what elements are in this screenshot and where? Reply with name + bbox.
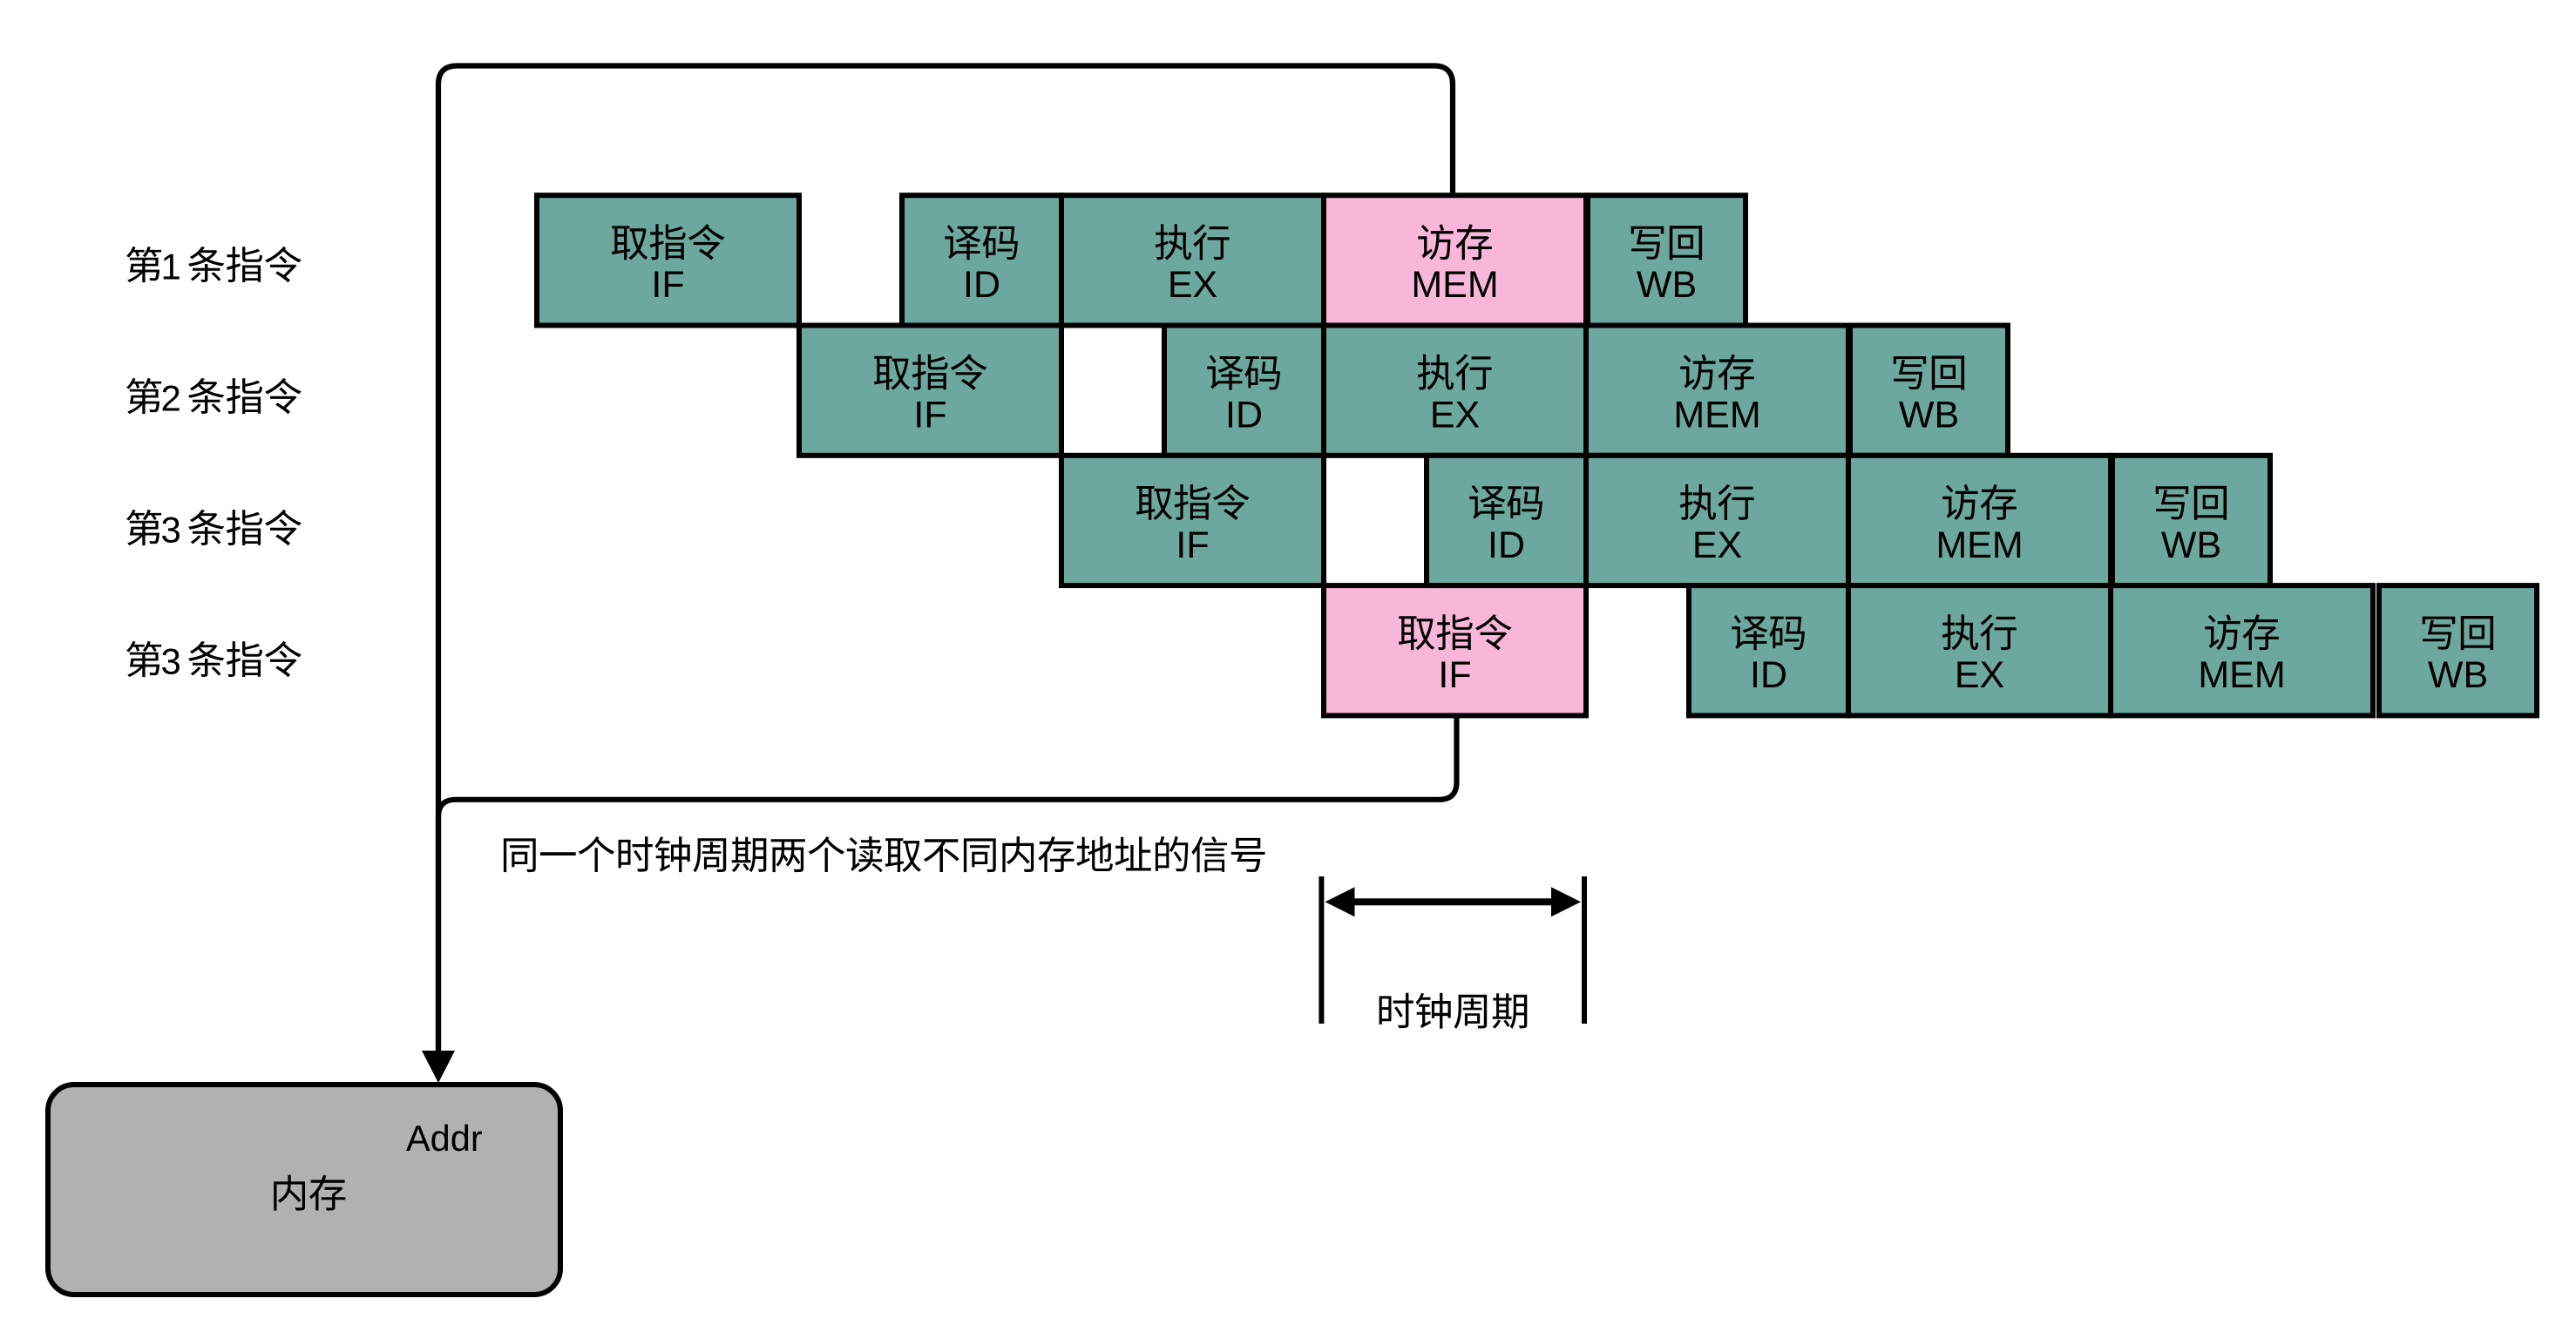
svg-text:3: 3 (161, 510, 181, 551)
svg-text:MEM: MEM (1935, 524, 2023, 566)
svg-text:ID: ID (1225, 395, 1263, 436)
svg-text:IF: IF (651, 264, 684, 306)
svg-text:ID: ID (1750, 654, 1787, 696)
svg-text:1: 1 (161, 247, 181, 287)
svg-text:WB: WB (1637, 264, 1697, 306)
svg-text:IF: IF (913, 395, 946, 436)
svg-text:EX: EX (1692, 524, 1742, 566)
svg-text:EX: EX (1168, 264, 1217, 306)
svg-text:EX: EX (1955, 654, 2004, 696)
svg-text:MEM: MEM (1673, 395, 1760, 436)
svg-text:MEM: MEM (1411, 264, 1498, 306)
svg-text:IF: IF (1438, 654, 1471, 696)
svg-text:IF: IF (1176, 524, 1209, 566)
svg-text:MEM: MEM (2198, 654, 2285, 696)
svg-text:Addr: Addr (406, 1118, 483, 1159)
svg-text:2: 2 (161, 378, 181, 419)
svg-text:EX: EX (1430, 395, 1480, 436)
svg-text:ID: ID (963, 264, 1000, 306)
svg-text:3: 3 (161, 641, 181, 682)
svg-text:WB: WB (2428, 654, 2488, 696)
svg-text:ID: ID (1488, 524, 1525, 566)
svg-text:WB: WB (1899, 395, 1959, 436)
svg-text:WB: WB (2161, 524, 2221, 566)
